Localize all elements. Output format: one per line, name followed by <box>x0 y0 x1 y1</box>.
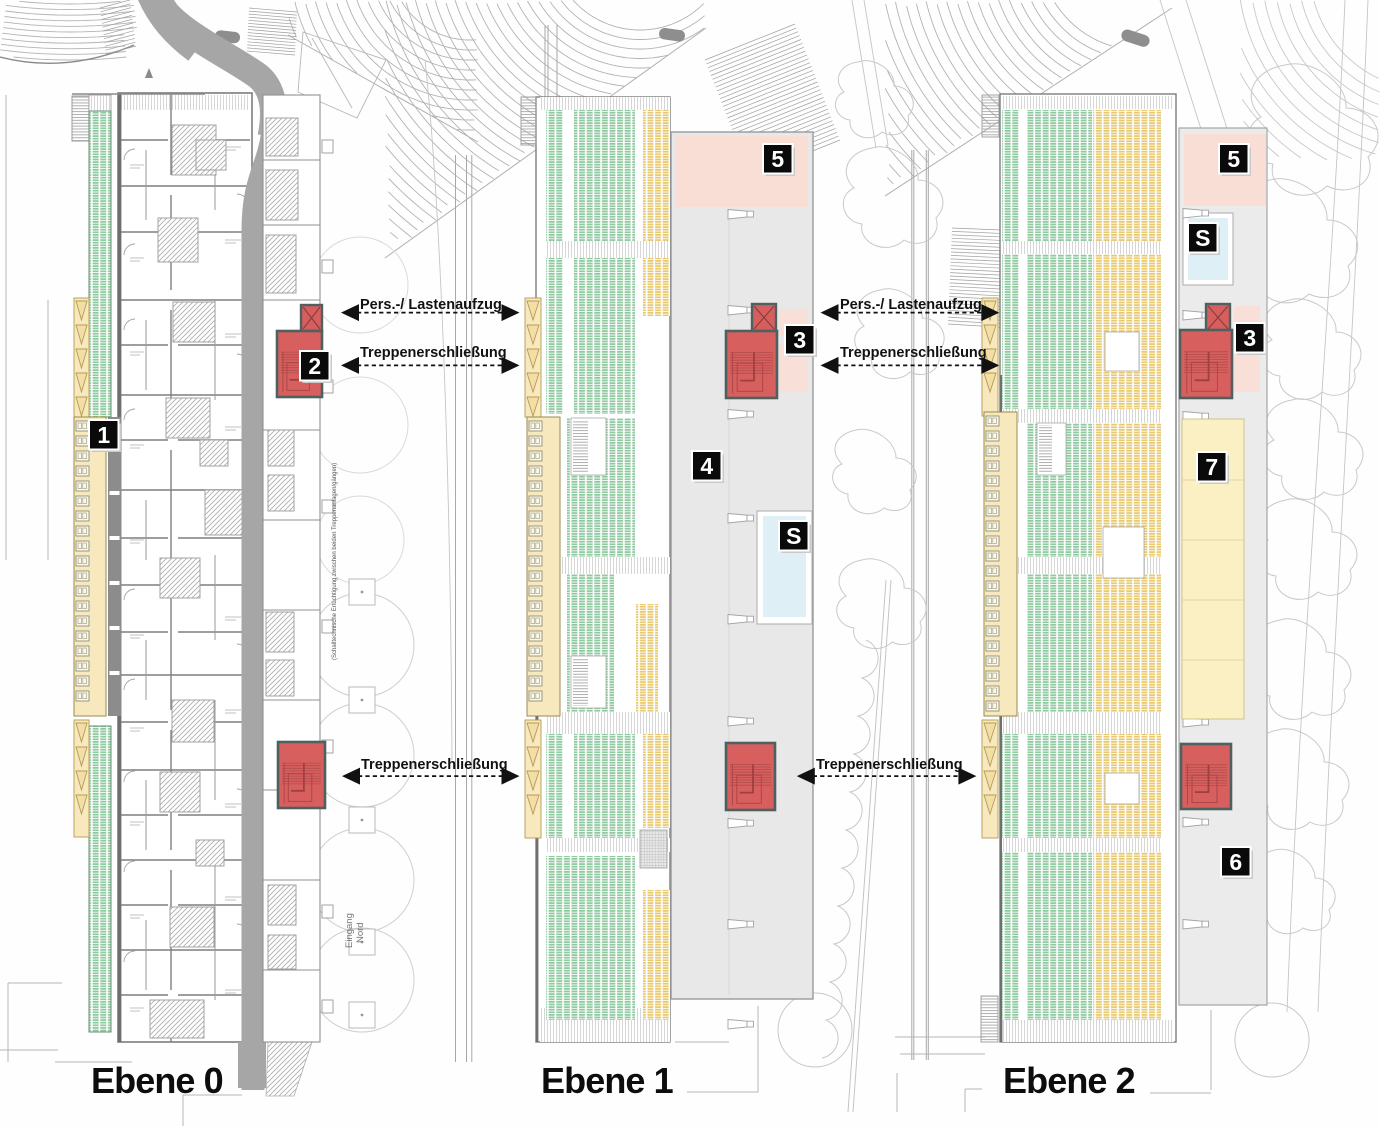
svg-text:Eingang: Eingang <box>344 913 355 948</box>
svg-text:4: 4 <box>700 453 713 479</box>
svg-text:Treppenerschließung: Treppenerschließung <box>361 757 508 773</box>
svg-text:Pers.-/ Lastenaufzug: Pers.-/ Lastenaufzug <box>840 297 982 313</box>
svg-text:Treppenerschließung: Treppenerschließung <box>840 345 987 361</box>
svg-text:Ebene 0: Ebene 0 <box>91 1060 223 1101</box>
svg-text:5: 5 <box>1227 146 1240 172</box>
svg-text:Treppenerschließung: Treppenerschließung <box>360 345 507 361</box>
svg-text:Treppenerschließung: Treppenerschließung <box>816 757 963 773</box>
svg-text:3: 3 <box>1243 325 1256 351</box>
svg-text:Ebene 2: Ebene 2 <box>1003 1060 1135 1101</box>
svg-text:S: S <box>786 523 801 549</box>
svg-text:Pers.-/ Lastenaufzug: Pers.-/ Lastenaufzug <box>360 297 502 313</box>
svg-text:3: 3 <box>793 327 806 353</box>
svg-text:5: 5 <box>771 146 784 172</box>
svg-text:2: 2 <box>308 353 321 379</box>
svg-text:1: 1 <box>97 422 110 448</box>
svg-text:6: 6 <box>1229 849 1242 875</box>
svg-text:(Schalltechnische Ertüchtigung: (Schalltechnische Ertüchtigung zwischen … <box>332 463 338 660</box>
svg-text:Nord: Nord <box>355 922 366 943</box>
svg-text:7: 7 <box>1205 454 1218 480</box>
svg-text:Ebene 1: Ebene 1 <box>541 1060 674 1101</box>
svg-text:S: S <box>1195 225 1210 251</box>
